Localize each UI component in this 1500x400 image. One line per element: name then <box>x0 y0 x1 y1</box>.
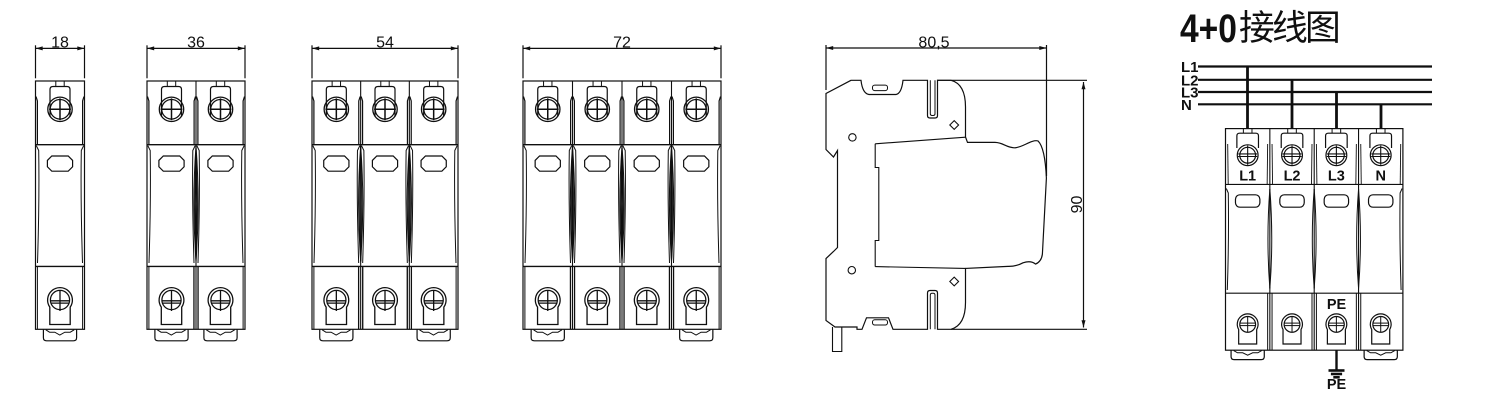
svg-text:PE: PE <box>1327 377 1347 393</box>
svg-text:4+0: 4+0 <box>1180 6 1237 50</box>
svg-text:36: 36 <box>187 34 205 51</box>
svg-text:PE: PE <box>1327 297 1347 313</box>
svg-text:54: 54 <box>376 34 394 51</box>
svg-text:L2: L2 <box>1284 169 1301 185</box>
svg-text:18: 18 <box>51 34 69 51</box>
svg-text:80,5: 80,5 <box>918 34 949 51</box>
svg-text:N: N <box>1375 169 1385 185</box>
svg-text:90: 90 <box>1069 196 1086 214</box>
svg-text:L3: L3 <box>1328 169 1345 185</box>
svg-text:N: N <box>1181 97 1192 114</box>
svg-text:72: 72 <box>613 34 631 51</box>
svg-text:L1: L1 <box>1239 169 1256 185</box>
